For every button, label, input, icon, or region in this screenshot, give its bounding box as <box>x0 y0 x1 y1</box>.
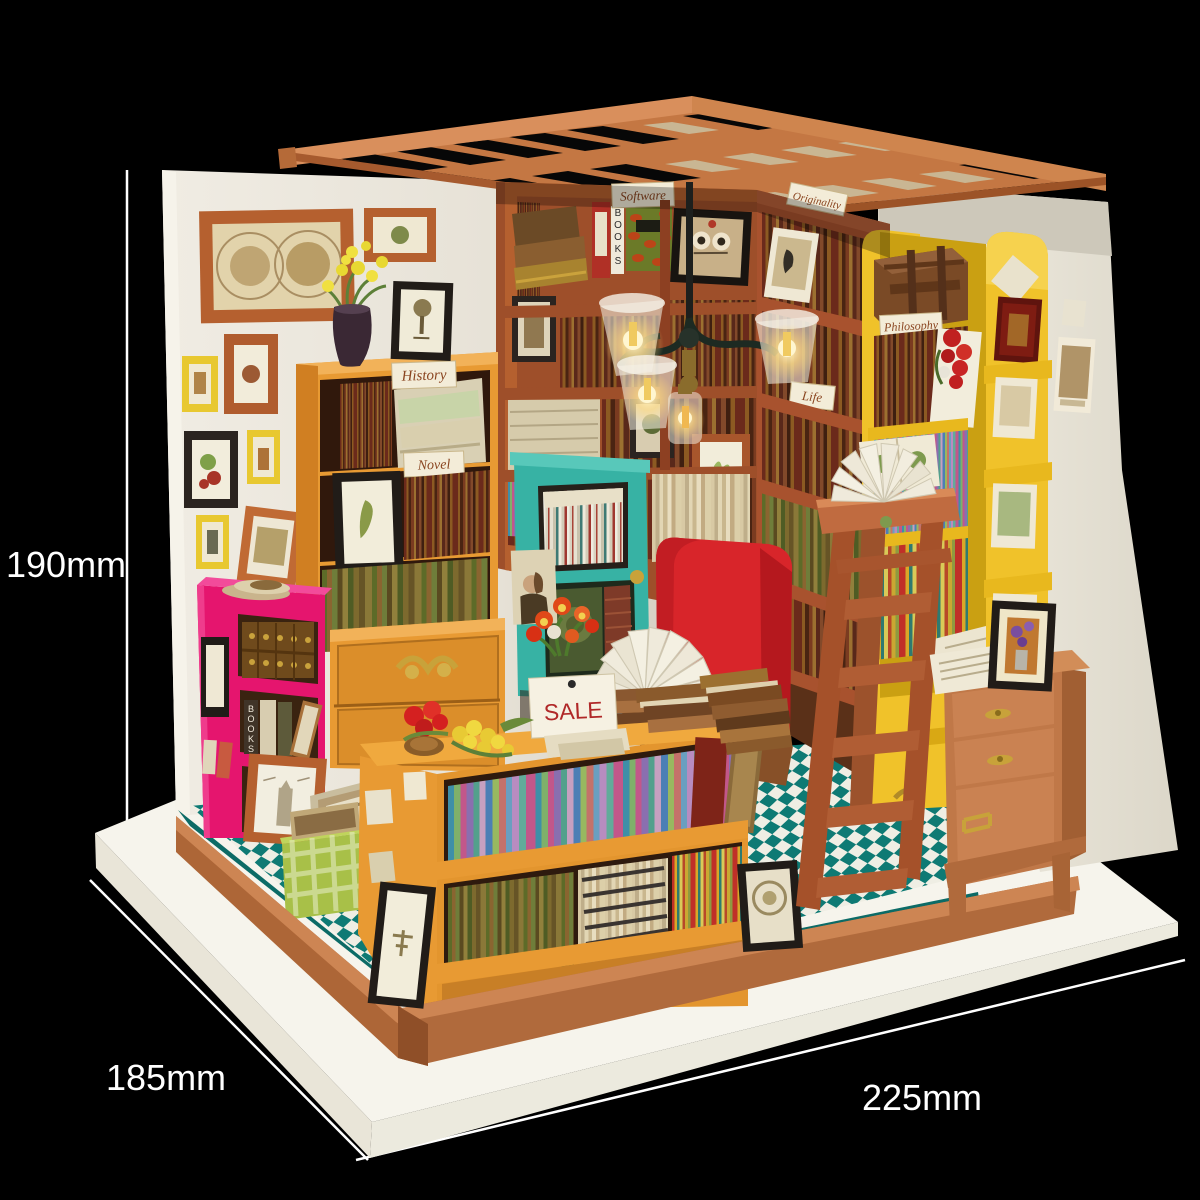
svg-text:History: History <box>400 367 447 385</box>
svg-text:Life: Life <box>800 388 823 405</box>
svg-text:SALE: SALE <box>543 696 603 725</box>
svg-text:225mm: 225mm <box>862 1077 982 1118</box>
svg-text:Novel: Novel <box>416 457 450 473</box>
svg-text:190mm: 190mm <box>6 544 126 585</box>
svg-text:185mm: 185mm <box>106 1057 226 1098</box>
svg-text:BOOKS: BOOKS <box>614 208 622 267</box>
svg-text:BOOKS: BOOKS <box>247 704 254 754</box>
